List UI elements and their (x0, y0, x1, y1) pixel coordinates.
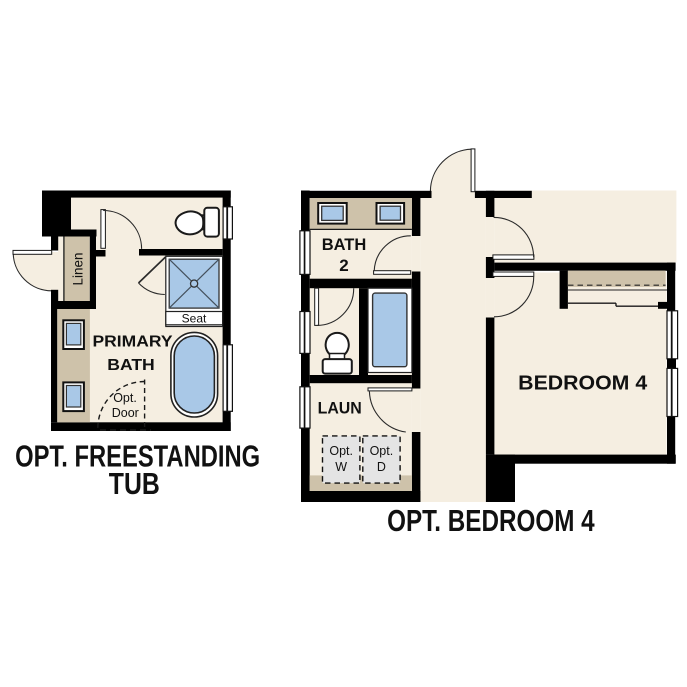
svg-text:Linen: Linen (70, 252, 85, 285)
svg-text:BATH: BATH (322, 235, 367, 254)
svg-text:BEDROOM 4: BEDROOM 4 (518, 372, 648, 395)
svg-text:W: W (335, 460, 347, 474)
svg-text:2: 2 (339, 256, 348, 275)
svg-text:BATH: BATH (107, 357, 155, 374)
svg-text:Seat: Seat (182, 312, 207, 326)
svg-text:D: D (377, 460, 386, 474)
svg-text:TUB: TUB (109, 466, 160, 501)
svg-text:Door: Door (112, 406, 139, 420)
svg-text:OPT. BEDROOM 4: OPT. BEDROOM 4 (387, 504, 595, 538)
svg-text:PRIMARY: PRIMARY (93, 333, 173, 350)
svg-text:Opt.: Opt. (113, 391, 137, 405)
svg-text:Opt.: Opt. (329, 444, 353, 458)
svg-text:LAUN: LAUN (318, 399, 362, 418)
svg-text:Opt.: Opt. (370, 444, 394, 458)
